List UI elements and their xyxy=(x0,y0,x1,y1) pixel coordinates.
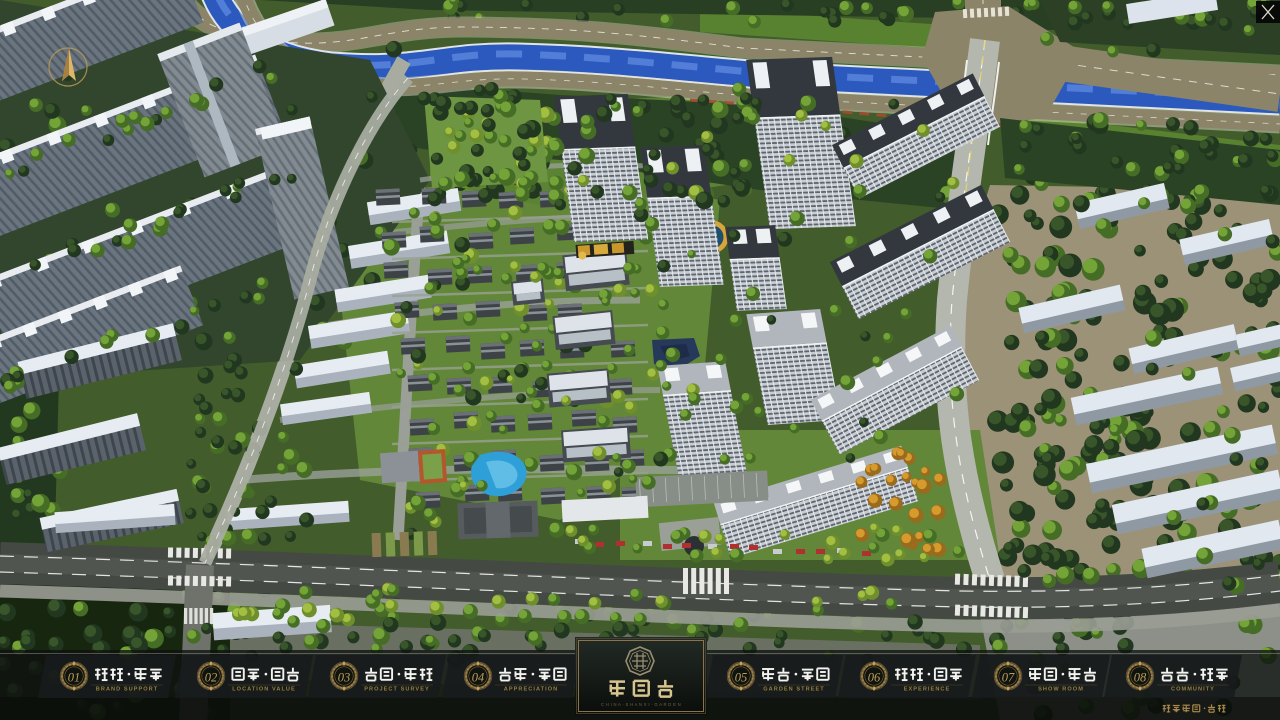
svg-text:C H I N A · S H A N X I · G A: C H I N A · S H A N X I · G A R D E N xyxy=(601,702,681,707)
svg-text:SHOW ROOM: SHOW ROOM xyxy=(1038,687,1084,693)
svg-text:EXPERIENCE: EXPERIENCE xyxy=(904,687,951,693)
svg-text:PROJECT SURVEY: PROJECT SURVEY xyxy=(364,687,430,693)
svg-text:08: 08 xyxy=(1134,671,1147,685)
svg-text:COMMUNITY: COMMUNITY xyxy=(1171,687,1215,693)
svg-text:07: 07 xyxy=(1002,671,1015,685)
svg-text:02: 02 xyxy=(205,671,218,685)
svg-text:BRAND SUPPORT: BRAND SUPPORT xyxy=(96,687,158,693)
svg-text:01: 01 xyxy=(68,671,81,685)
svg-text:06: 06 xyxy=(868,671,881,685)
svg-text:LOCATION VALUE: LOCATION VALUE xyxy=(232,687,296,693)
svg-text:04: 04 xyxy=(472,671,485,685)
svg-text:GARDEN STREET: GARDEN STREET xyxy=(763,687,825,693)
svg-text:05: 05 xyxy=(735,671,748,685)
svg-text:APPRECIATION: APPRECIATION xyxy=(504,687,558,693)
svg-text:03: 03 xyxy=(338,671,351,685)
